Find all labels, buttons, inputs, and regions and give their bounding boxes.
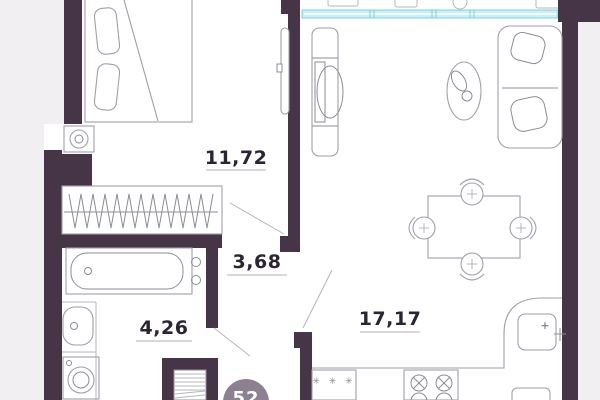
outside-right: [578, 22, 600, 400]
door-swings: [214, 203, 332, 356]
entrance-hatch: [174, 370, 206, 400]
badge-number: 52: [232, 388, 259, 400]
floor-plan-svg: ✳ ✳ ✳ + 11,72 3,68 4,26 17,17 52: [0, 0, 600, 400]
sink-tap: [71, 323, 78, 330]
wall-outer-left: [44, 150, 62, 400]
apartment-badge: 52: [223, 379, 269, 400]
hallway-area-label: 3,68: [233, 251, 282, 273]
lamp-inner: [75, 135, 83, 143]
outside-left-bottom: [0, 124, 44, 400]
tv-screen: [317, 66, 343, 118]
kitchen-sink-unit: [512, 388, 550, 400]
hatch-line: [175, 395, 205, 398]
bedroom-door-swing: [230, 203, 284, 234]
washer-knob: [67, 361, 72, 366]
hatch-line: [175, 391, 205, 394]
pillow: [94, 7, 121, 55]
wall-lower-cap: [294, 332, 312, 348]
wardrobe: [62, 186, 222, 234]
wall-hall-south: [58, 234, 222, 248]
door-knob: [277, 64, 282, 72]
balcony-items: [328, 0, 562, 9]
kitchen-counter: [312, 298, 562, 368]
wall-entrance-lintel: [162, 358, 218, 370]
sofa-pillow: [509, 95, 549, 133]
washer-drum-inner: [73, 372, 89, 388]
wall-lower: [300, 348, 312, 400]
fridge-plus-mark: +: [540, 319, 549, 332]
living-furniture: [312, 26, 562, 280]
balcony-plant-icon: [453, 0, 467, 9]
tap-icon: [192, 258, 201, 267]
burner-icon: [411, 393, 427, 400]
bedroom-area-label: 11,72: [205, 147, 268, 169]
wall-bathroom-east: [206, 248, 218, 328]
sofa-pillow: [509, 31, 547, 66]
bathroom-door-swing: [214, 328, 250, 356]
burner-icon: [436, 393, 452, 400]
bathtub-drain: [85, 268, 92, 275]
lamp-icon: [70, 130, 88, 148]
wall-middle: [288, 0, 300, 252]
wall-outer-right: [562, 8, 578, 400]
tap-icon: [192, 276, 201, 285]
stove-burners: [411, 375, 452, 400]
wall-entrance-jamb-left: [162, 370, 174, 400]
window-band: [302, 10, 558, 18]
balcony-box-icon: [395, 0, 417, 7]
fridge: [518, 314, 556, 350]
bathtub-inner: [71, 253, 183, 289]
washer-drum: [68, 367, 94, 393]
floor-plan: ✳ ✳ ✳ + 11,72 3,68 4,26 17,17 52: [0, 0, 600, 400]
appliance-marks: ✳ ✳ ✳: [312, 377, 355, 387]
living-door-swing: [303, 270, 332, 328]
kitchen: ✳ ✳ ✳ +: [312, 298, 566, 400]
bathroom-area-label: 4,26: [140, 317, 189, 339]
wall-bedroom-left: [64, 0, 82, 124]
wall-left-chunk: [60, 154, 92, 188]
outside-left-top: [0, 0, 64, 124]
wall-middle-foot: [280, 236, 288, 252]
living-area-label: 17,17: [359, 308, 422, 330]
bed-blanket-fold: [124, 0, 158, 121]
plant-leaf: [462, 91, 472, 101]
wall-entrance-jamb-right: [206, 370, 218, 400]
bedroom-furniture: [64, 0, 289, 152]
pillow: [94, 63, 121, 111]
balcony-box-icon: [328, 0, 358, 6]
